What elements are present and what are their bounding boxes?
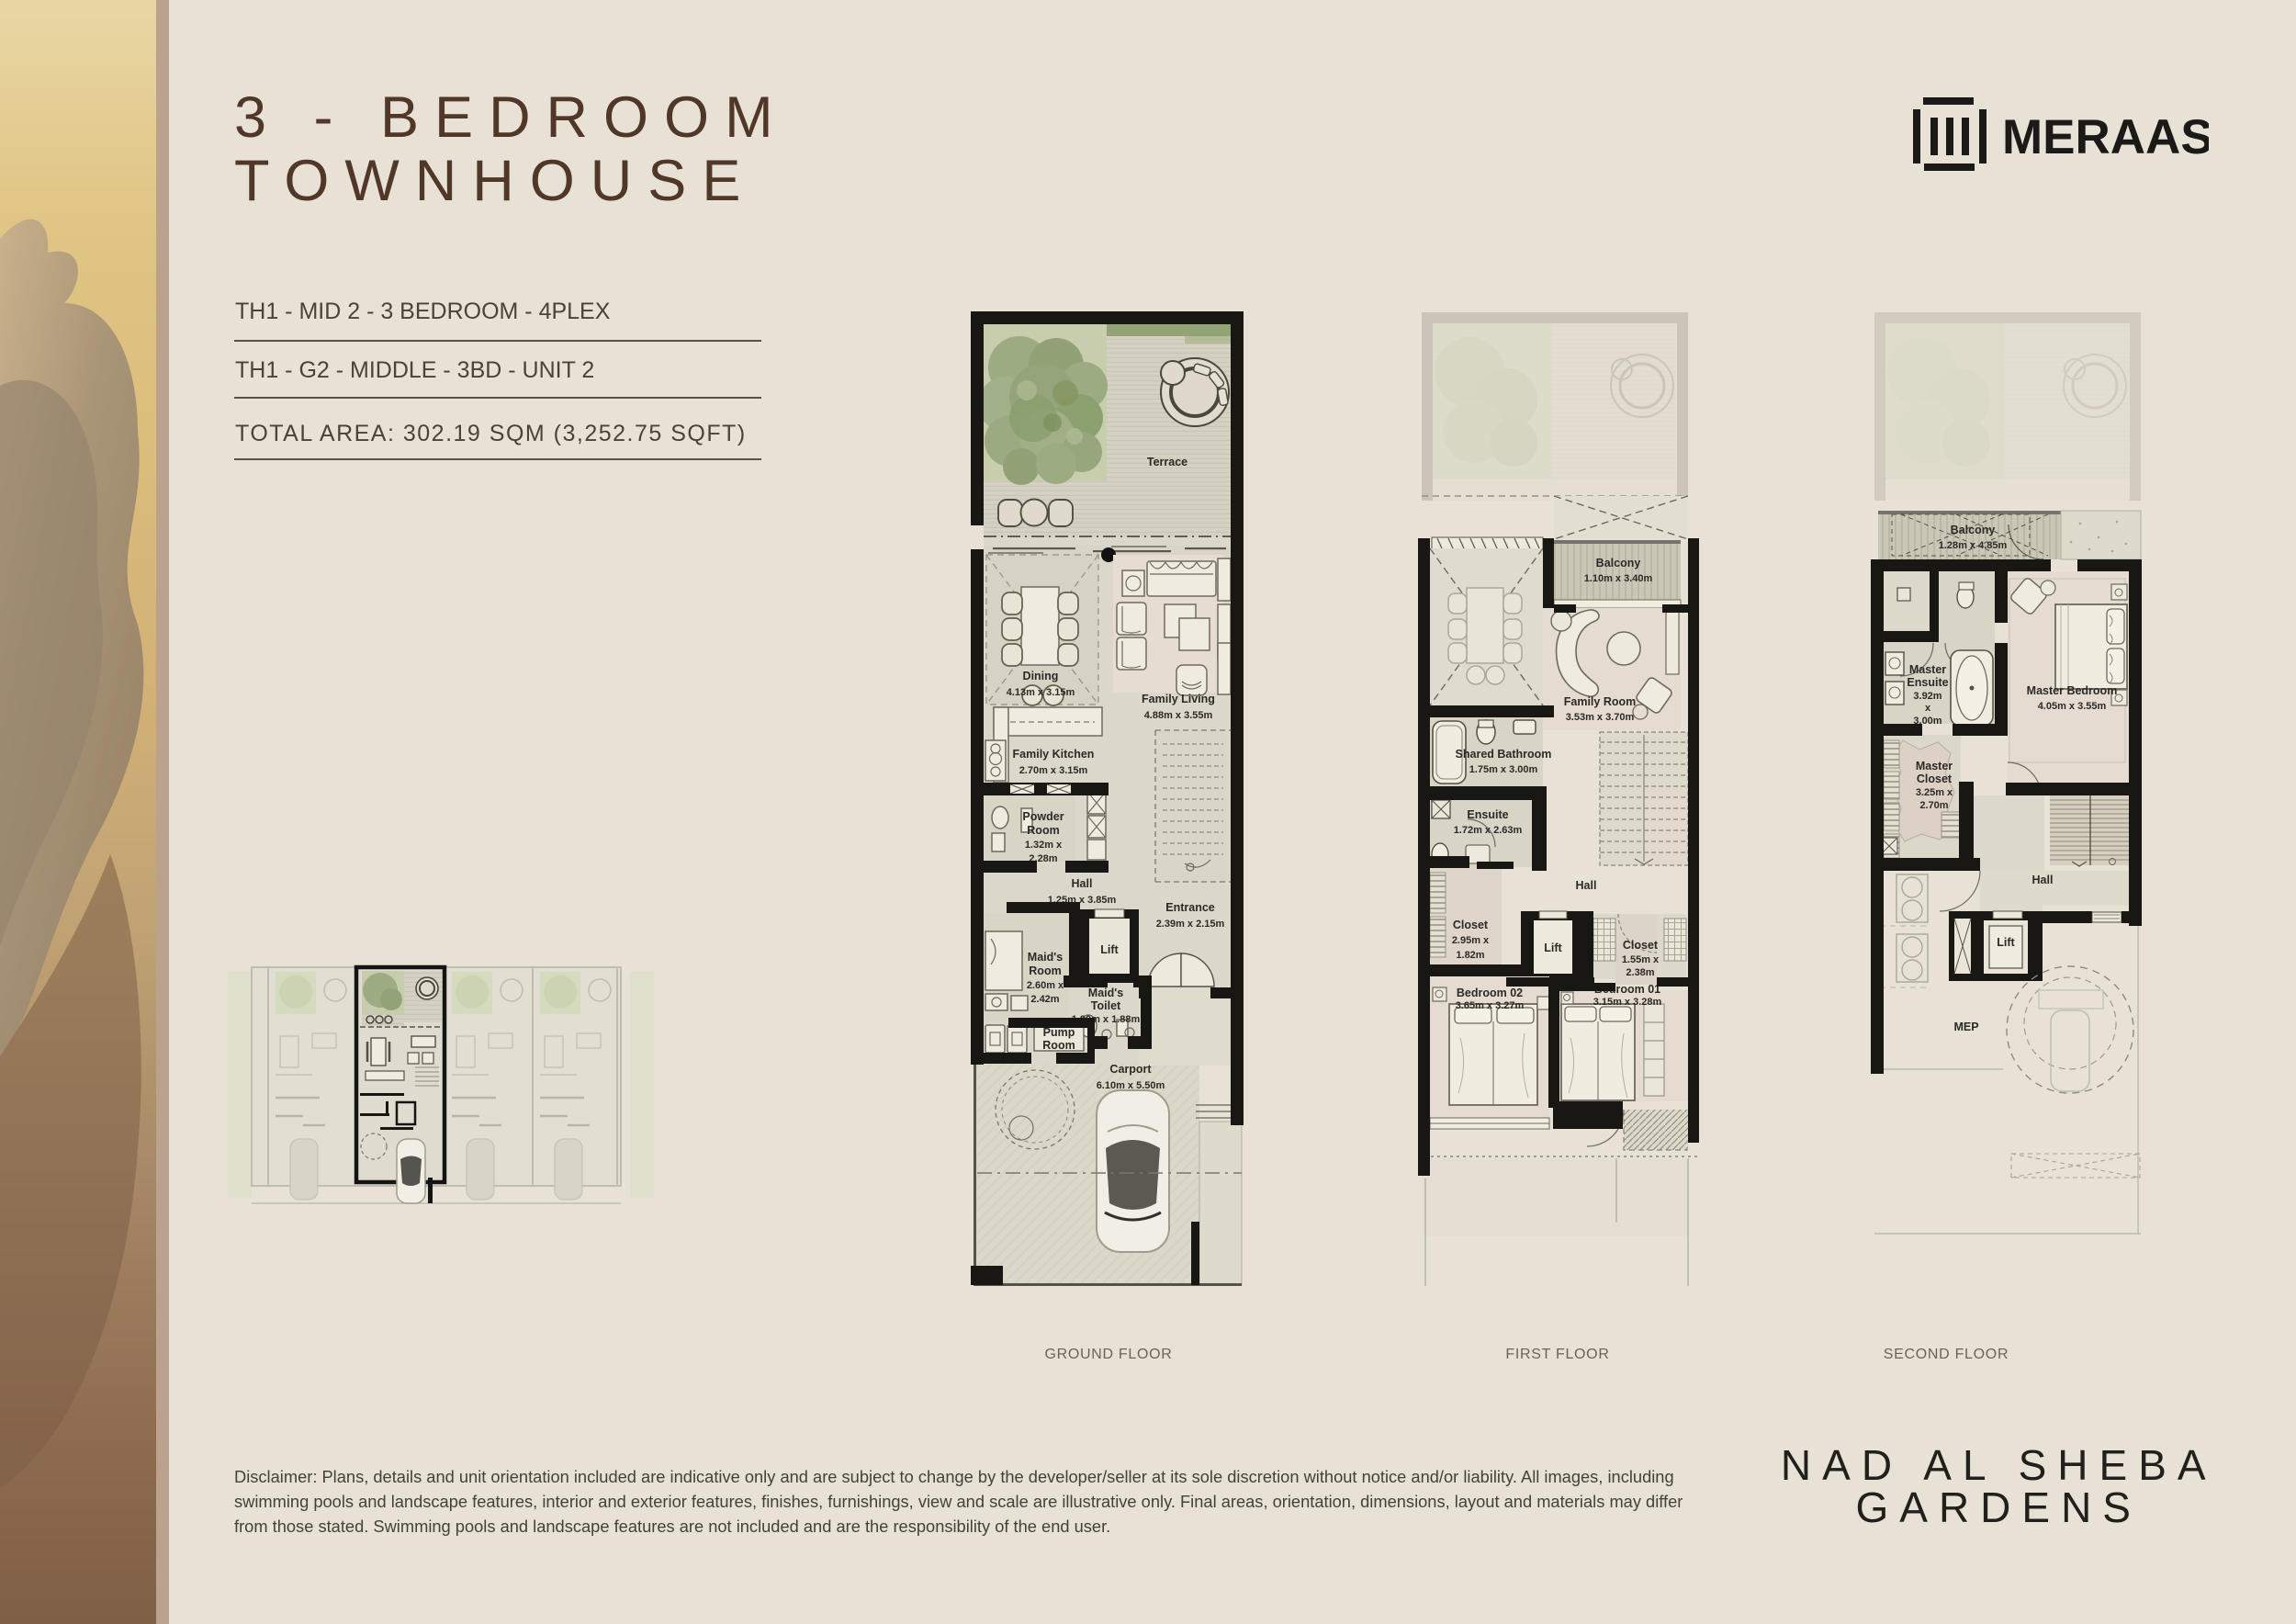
svg-text:Closet: Closet bbox=[1623, 939, 1659, 952]
svg-text:Hall: Hall bbox=[1576, 879, 1597, 892]
svg-text:1.72m x 2.63m: 1.72m x 2.63m bbox=[1454, 825, 1523, 836]
svg-text:Hall: Hall bbox=[1072, 877, 1093, 890]
svg-text:Maid's: Maid's bbox=[1028, 951, 1063, 964]
svg-text:2.42m: 2.42m bbox=[1030, 994, 1059, 1005]
svg-text:Closet: Closet bbox=[1917, 773, 1953, 785]
svg-text:Shared Bathroom: Shared Bathroom bbox=[1456, 748, 1552, 761]
svg-text:3.15m x 3.28m: 3.15m x 3.28m bbox=[1593, 997, 1662, 1008]
svg-text:MEP: MEP bbox=[1953, 1021, 1978, 1033]
svg-text:Closet: Closet bbox=[1453, 919, 1489, 931]
svg-text:Lift: Lift bbox=[1100, 943, 1119, 956]
svg-text:Master Bedroom: Master Bedroom bbox=[2027, 684, 2118, 697]
svg-text:3.25m x: 3.25m x bbox=[1916, 787, 1953, 798]
svg-text:Room: Room bbox=[1027, 824, 1059, 837]
svg-text:Room: Room bbox=[1042, 1039, 1075, 1052]
svg-text:2.60m x: 2.60m x bbox=[1027, 980, 1064, 991]
svg-text:3.65m x 3.27m: 3.65m x 3.27m bbox=[1456, 1000, 1525, 1011]
svg-text:Master: Master bbox=[1916, 760, 1953, 773]
svg-text:Toilet: Toilet bbox=[1091, 999, 1121, 1012]
svg-text:Carport: Carport bbox=[1109, 1063, 1152, 1076]
svg-text:Balcony: Balcony bbox=[1951, 524, 1996, 536]
svg-text:1.75m x 3.00m: 1.75m x 3.00m bbox=[1469, 764, 1538, 775]
svg-text:2.39m x 2.15m: 2.39m x 2.15m bbox=[1156, 919, 1225, 930]
svg-text:Master: Master bbox=[1909, 663, 1946, 676]
svg-text:4.05m x 3.55m: 4.05m x 3.55m bbox=[2038, 701, 2107, 712]
svg-text:Lift: Lift bbox=[1544, 942, 1562, 954]
svg-text:4.13m x 3.15m: 4.13m x 3.15m bbox=[1007, 687, 1075, 698]
svg-text:Balcony: Balcony bbox=[1596, 557, 1641, 570]
svg-text:1.10m x 3.40m: 1.10m x 3.40m bbox=[1584, 573, 1653, 584]
svg-text:Family Room: Family Room bbox=[1564, 695, 1637, 708]
svg-text:Bedroom 02: Bedroom 02 bbox=[1457, 987, 1523, 999]
svg-text:Ensuite: Ensuite bbox=[1907, 676, 1948, 689]
svg-text:Family Kitchen: Family Kitchen bbox=[1013, 748, 1095, 761]
svg-text:1.55m x: 1.55m x bbox=[1622, 954, 1660, 965]
svg-text:1.28m x 4.85m: 1.28m x 4.85m bbox=[1939, 540, 2008, 551]
svg-text:2.95m x: 2.95m x bbox=[1452, 935, 1490, 946]
svg-text:3.92m: 3.92m bbox=[1913, 691, 1941, 702]
svg-text:Maid's: Maid's bbox=[1088, 987, 1123, 999]
svg-text:Room: Room bbox=[1029, 964, 1061, 977]
svg-text:1.32m x: 1.32m x bbox=[1025, 840, 1063, 851]
svg-text:1.82m: 1.82m bbox=[1456, 950, 1484, 961]
svg-text:Dining: Dining bbox=[1023, 670, 1059, 682]
svg-text:Pump: Pump bbox=[1043, 1026, 1075, 1039]
svg-text:2.70m x 3.15m: 2.70m x 3.15m bbox=[1019, 765, 1088, 776]
svg-text:Ensuite: Ensuite bbox=[1467, 808, 1508, 821]
svg-text:Entrance: Entrance bbox=[1165, 901, 1215, 914]
svg-text:2.38m: 2.38m bbox=[1626, 967, 1654, 978]
svg-text:3.53m x 3.70m: 3.53m x 3.70m bbox=[1566, 712, 1635, 723]
svg-text:Lift: Lift bbox=[1997, 936, 2015, 949]
svg-text:4.88m x 3.55m: 4.88m x 3.55m bbox=[1144, 710, 1213, 721]
svg-text:x: x bbox=[1925, 703, 1931, 714]
svg-text:Hall: Hall bbox=[2032, 874, 2054, 886]
svg-text:Family Living: Family Living bbox=[1142, 693, 1215, 705]
svg-text:Terrace: Terrace bbox=[1147, 456, 1187, 468]
svg-text:Powder: Powder bbox=[1022, 810, 1064, 823]
svg-text:2.70m: 2.70m bbox=[1919, 800, 1948, 811]
